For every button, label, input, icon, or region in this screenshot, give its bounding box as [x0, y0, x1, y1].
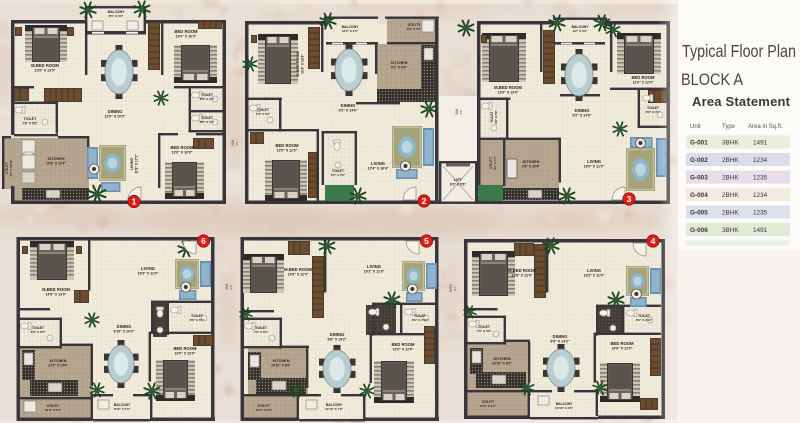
svg-text:M.BED ROOM: M.BED ROOM	[31, 63, 59, 68]
svg-text:9'2" X 9'4": 9'2" X 9'4"	[391, 66, 407, 70]
svg-text:12'0" X 13'0": 12'0" X 13'0"	[498, 91, 519, 95]
svg-text:9'2" X 14'6": 9'2" X 14'6"	[573, 114, 592, 118]
svg-text:KITCHEN: KITCHEN	[273, 359, 290, 363]
svg-text:6'0" X 5'6": 6'0" X 5'6"	[450, 183, 466, 187]
svg-text:12'0" X 11'0": 12'0" X 11'0"	[277, 149, 298, 153]
svg-text:1235: 1235	[753, 210, 768, 217]
svg-text:DINING: DINING	[575, 108, 590, 113]
svg-text:1491: 1491	[753, 140, 768, 147]
svg-text:2BHK: 2BHK	[722, 175, 739, 182]
svg-text:8'0" X 4'10": 8'0" X 4'10"	[636, 318, 653, 322]
svg-text:14'6" X 13'0": 14'6" X 13'0"	[46, 293, 67, 297]
svg-text:11'8" X 17'2": 11'8" X 17'2"	[135, 154, 139, 174]
svg-text:Area Statement: Area Statement	[692, 94, 791, 109]
svg-text:12'6" X 13'0": 12'6" X 13'0"	[35, 69, 56, 73]
svg-text:Typical Floor Plan: Typical Floor Plan	[682, 41, 796, 61]
svg-text:8'8" X 4'0": 8'8" X 4'0"	[200, 97, 215, 101]
svg-text:BED ROOM: BED ROOM	[275, 143, 299, 148]
svg-text:10'6" X 10'4": 10'6" X 10'4"	[46, 162, 66, 166]
svg-text:G-004: G-004	[690, 192, 708, 199]
svg-text:6: 6	[201, 236, 206, 246]
svg-text:M.BED ROOM: M.BED ROOM	[508, 268, 536, 273]
svg-text:6'0" X 5'0": 6'0" X 5'0"	[331, 173, 346, 177]
svg-text:Area in Sq.ft.: Area in Sq.ft.	[748, 124, 783, 130]
svg-text:9'10" X 10'0": 9'10" X 10'0"	[114, 330, 135, 334]
svg-text:9'2" X 14'6": 9'2" X 14'6"	[339, 109, 358, 113]
svg-text:12'0" X 3'4": 12'0" X 3'4"	[45, 408, 62, 412]
svg-text:10'10" X 4'0": 10'10" X 4'0"	[325, 407, 344, 411]
svg-text:10'0" X 4'0": 10'0" X 4'0"	[480, 404, 497, 408]
svg-text:LIVING: LIVING	[371, 161, 385, 166]
svg-text:8'0" X 4'10": 8'0" X 4'10"	[412, 318, 429, 322]
svg-text:TOILET: TOILET	[24, 117, 38, 121]
svg-text:BED ROOM: BED ROOM	[610, 341, 634, 346]
svg-text:10'0" X 12'0": 10'0" X 12'0"	[612, 347, 633, 351]
svg-text:13'0" X 10'0": 13'0" X 10'0"	[172, 151, 193, 155]
svg-text:10'0" X 4'0": 10'0" X 4'0"	[256, 408, 273, 412]
svg-text:9'2" X 4'0": 9'2" X 4'0"	[573, 29, 588, 33]
svg-text:11'0" X 10'0": 11'0" X 10'0"	[105, 115, 126, 119]
svg-text:16'2" X 11'0": 16'2" X 11'0"	[364, 270, 385, 274]
svg-text:M.BED ROOM: M.BED ROOM	[494, 85, 522, 90]
svg-text:1234: 1234	[753, 157, 768, 164]
svg-text:BLOCK A: BLOCK A	[681, 71, 743, 89]
svg-text:12'10" X 4'0": 12'10" X 4'0"	[555, 406, 574, 410]
svg-text:BED ROOM: BED ROOM	[173, 346, 197, 351]
svg-text:LIVING: LIVING	[130, 158, 134, 171]
svg-text:8'6" X 5'0": 8'6" X 5'0"	[31, 330, 46, 334]
svg-text:4'0": 4'0"	[229, 284, 233, 290]
svg-text:KITCHEN: KITCHEN	[48, 157, 65, 161]
svg-text:G-005: G-005	[690, 210, 708, 217]
svg-text:2BHK: 2BHK	[722, 157, 739, 164]
svg-text:4'0": 4'0"	[459, 109, 463, 115]
svg-text:KITCHEN: KITCHEN	[494, 357, 511, 361]
svg-text:2BHK: 2BHK	[722, 192, 739, 199]
svg-text:4: 4	[651, 236, 656, 246]
svg-text:10'0" X 13'0": 10'0" X 13'0"	[175, 352, 196, 356]
svg-text:4'3" X 10'10": 4'3" X 10'10"	[9, 159, 13, 177]
svg-text:G-001: G-001	[690, 140, 708, 147]
svg-text:M.BED ROOM: M.BED ROOM	[284, 267, 312, 272]
svg-text:7'6" X 5'0": 7'6" X 5'0"	[477, 329, 492, 333]
svg-text:KITCHEN: KITCHEN	[523, 160, 540, 164]
svg-text:DINING: DINING	[330, 332, 345, 337]
svg-text:M.BED ROOM: M.BED ROOM	[296, 51, 300, 76]
svg-text:LIVING: LIVING	[141, 266, 155, 271]
svg-text:3BHK: 3BHK	[722, 227, 739, 234]
svg-text:BED ROOM: BED ROOM	[391, 342, 415, 347]
svg-text:3BHK: 3BHK	[722, 140, 739, 147]
svg-text:LIVING: LIVING	[587, 268, 601, 273]
svg-text:10'0" X 4'0": 10'0" X 4'0"	[342, 29, 359, 33]
svg-text:10'10" X 8'0": 10'10" X 8'0"	[492, 362, 512, 366]
svg-text:4'2" X 7'7": 4'2" X 7'7"	[493, 155, 497, 170]
svg-text:BED ROOM: BED ROOM	[174, 29, 198, 34]
svg-text:11'0" X 12'0": 11'0" X 12'0"	[633, 81, 654, 85]
svg-text:DINING: DINING	[108, 109, 123, 114]
svg-text:7'6" X 5'0": 7'6" X 5'0"	[22, 121, 38, 125]
svg-text:16'2" X 11'0": 16'2" X 11'0"	[138, 272, 159, 276]
svg-text:Type: Type	[722, 124, 736, 130]
svg-text:10'0" X 12'0": 10'0" X 12'0"	[393, 348, 414, 352]
svg-text:3: 3	[627, 194, 632, 204]
svg-text:Unit: Unit	[690, 124, 701, 130]
svg-text:6'8" X 4'0": 6'8" X 4'0"	[407, 27, 422, 31]
svg-text:8'6" X 14'2": 8'6" X 14'2"	[551, 340, 570, 344]
svg-text:G-003: G-003	[690, 175, 708, 182]
svg-text:13'0" X 10'0": 13'0" X 10'0"	[176, 35, 197, 39]
svg-text:G-002: G-002	[690, 157, 708, 164]
svg-text:DINING: DINING	[341, 103, 356, 108]
svg-text:13'6" X 12'0": 13'6" X 12'0"	[288, 273, 309, 277]
svg-text:4'8" X 5'8": 4'8" X 5'8"	[494, 109, 498, 124]
svg-text:2BHK: 2BHK	[722, 210, 739, 217]
svg-text:8'10" X 4'0": 8'10" X 4'0"	[114, 407, 131, 411]
svg-text:BED ROOM: BED ROOM	[170, 145, 194, 150]
svg-text:9'8" X 10'8": 9'8" X 10'8"	[522, 165, 540, 169]
svg-text:1491: 1491	[753, 227, 768, 234]
svg-text:DINING: DINING	[117, 324, 132, 329]
svg-text:BED ROOM: BED ROOM	[631, 75, 655, 80]
svg-text:LIFT: LIFT	[454, 178, 463, 182]
svg-text:DINING: DINING	[553, 334, 568, 339]
svg-text:1: 1	[132, 197, 137, 207]
svg-text:G-006: G-006	[690, 227, 708, 234]
svg-text:LIVING: LIVING	[367, 264, 381, 269]
svg-text:10'10" X 8'0": 10'10" X 8'0"	[271, 364, 291, 368]
svg-text:M.BED ROOM: M.BED ROOM	[42, 287, 70, 292]
svg-text:12'0" X 10'4": 12'0" X 10'4"	[48, 364, 68, 368]
svg-text:16'2" X 11'0": 16'2" X 11'0"	[584, 274, 605, 278]
svg-text:7'6" X 5'0": 7'6" X 5'0"	[254, 330, 269, 334]
svg-text:8'8" X 4'0": 8'8" X 4'0"	[200, 120, 215, 124]
svg-text:13'6" X 12'0": 13'6" X 12'0"	[512, 274, 533, 278]
svg-text:12'2" X 12'8": 12'2" X 12'8"	[301, 54, 305, 74]
svg-text:1235: 1235	[753, 175, 768, 182]
svg-text:8'0" X 5'0": 8'0" X 5'0"	[190, 318, 205, 322]
svg-text:KITCHEN: KITCHEN	[50, 359, 67, 363]
svg-text:4'0": 4'0"	[235, 140, 239, 146]
svg-text:8'5" X 4'0": 8'5" X 4'0"	[109, 14, 124, 18]
svg-text:5: 5	[424, 236, 429, 246]
svg-text:16'0" X 11'0": 16'0" X 11'0"	[584, 165, 605, 169]
svg-text:LIVING: LIVING	[587, 159, 601, 164]
svg-text:12'4" X 16'4": 12'4" X 16'4"	[368, 167, 389, 171]
svg-text:2: 2	[422, 196, 427, 206]
svg-text:4'0": 4'0"	[453, 285, 457, 291]
svg-text:KITCHEN: KITCHEN	[391, 61, 408, 65]
svg-text:7'8" X 5'0": 7'8" X 5'0"	[256, 112, 271, 116]
svg-text:8'6" X 14'2": 8'6" X 14'2"	[328, 338, 347, 342]
svg-text:1234: 1234	[753, 192, 768, 199]
